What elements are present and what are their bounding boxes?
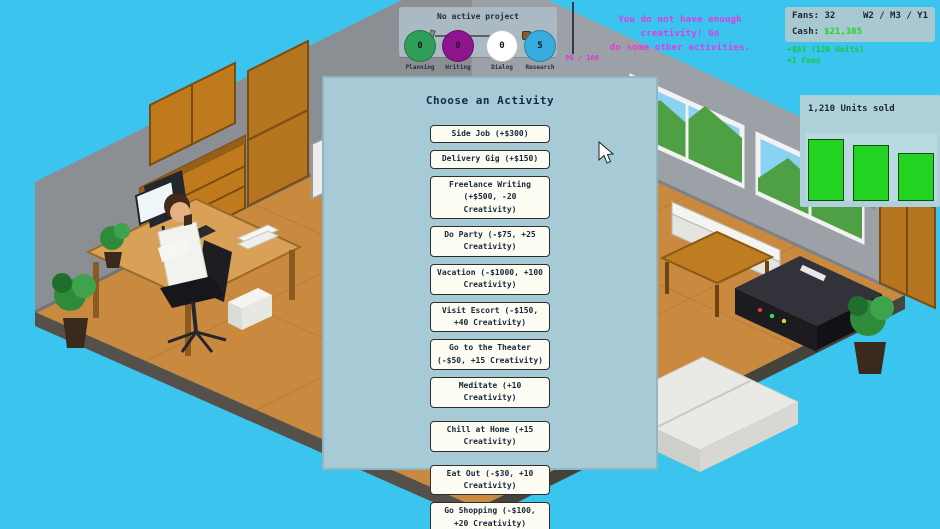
warning-line-2: do some other activities.: [585, 41, 775, 55]
mouse-cursor: [597, 141, 615, 165]
activity-visit-escort[interactable]: Visit Escort (-$150, +40 Creativity): [430, 302, 550, 333]
plant-right: [848, 296, 894, 374]
stat-circle-planning: 0: [404, 30, 436, 62]
project-panel: No active project 0 0 0 5 Planning Writi…: [399, 7, 557, 73]
sales-bar: [853, 145, 889, 201]
creativity-warning: You do not have enough creativity! Go do…: [585, 13, 775, 55]
activity-go-shopping[interactable]: Go Shopping (-$100, +20 Creativity): [430, 502, 550, 529]
activity-side-job[interactable]: Side Job (+$300): [430, 125, 550, 143]
game-date: W2 / M3 / Y1: [863, 10, 928, 23]
weekly-deltas: +$83 (120 Units) +1 Fans: [787, 44, 864, 66]
game-screen: No active project 0 0 0 5 Planning Writi…: [0, 0, 940, 529]
fans-label: Fans:: [792, 11, 819, 21]
delta-cash: +$83 (120 Units): [787, 44, 864, 55]
activity-go-to-theater[interactable]: Go to the Theater (-$50, +15 Creativity): [430, 339, 550, 370]
activity-vacation[interactable]: Vacation (-$1000, +100 Creativity): [430, 264, 550, 295]
activity-meditate[interactable]: Meditate (+10 Creativity): [430, 377, 550, 408]
activity-chill-at-home[interactable]: Chill at Home (+15 Creativity): [430, 421, 550, 452]
activity-eat-out[interactable]: Eat Out (-$30, +10 Creativity): [430, 465, 550, 496]
units-sold-title: 1,210 Units sold: [808, 104, 895, 114]
stat-label-writing: Writing: [436, 64, 480, 71]
stat-label-research: Research: [518, 64, 562, 71]
stat-value: 0: [417, 41, 422, 51]
meter-readout: 96 / 100: [550, 54, 614, 62]
stat-circle-dialog: 0: [486, 30, 518, 62]
stat-circle-writing: 0: [442, 30, 474, 62]
activity-delivery-gig[interactable]: Delivery Gig (+$150): [430, 150, 550, 168]
choose-activity-modal: Choose an Activity Side Job (+$300) Deli…: [322, 76, 658, 470]
units-sold-chart: [806, 133, 937, 201]
status-panel: Fans: 32 W2 / M3 / Y1 Cash: $21,385: [785, 7, 935, 42]
stat-value: 0: [499, 41, 504, 51]
sales-panel: 1,210 Units sold: [800, 95, 940, 207]
sales-bar: [898, 153, 934, 201]
activity-do-party[interactable]: Do Party (-$75, +25 Creativity): [430, 226, 550, 257]
meter-line: [572, 2, 574, 54]
warning-line-1: You do not have enough creativity! Go: [585, 13, 775, 41]
activity-freelance-writing[interactable]: Freelance Writing (+$500, -20 Creativity…: [430, 176, 550, 219]
sales-bar: [808, 139, 844, 201]
cash-value: $21,385: [824, 26, 862, 39]
fans-value: 32: [825, 11, 836, 21]
delta-fans: +1 Fans: [787, 55, 864, 66]
stat-value: 5: [537, 41, 542, 51]
fans-stat: Fans: 32: [792, 10, 835, 23]
stat-value: 0: [455, 41, 460, 51]
modal-title: Choose an Activity: [324, 94, 656, 107]
project-title: No active project: [399, 12, 557, 21]
cash-label: Cash:: [792, 26, 819, 39]
activity-list: Side Job (+$300) Delivery Gig (+$150) Fr…: [430, 125, 550, 529]
